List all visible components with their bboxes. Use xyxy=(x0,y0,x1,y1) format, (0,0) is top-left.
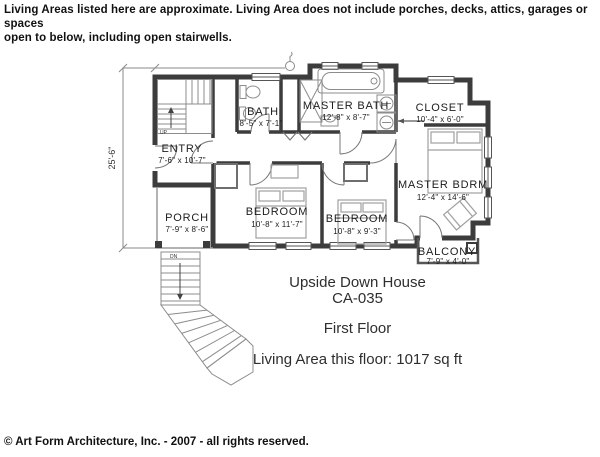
room-label-balcony: BALCONY 7'-9" x 4'-0" xyxy=(418,246,476,266)
svg-text:7'-9" x 4'-0": 7'-9" x 4'-0" xyxy=(427,257,470,266)
svg-text:PORCH: PORCH xyxy=(165,212,209,224)
room-label-bedroom-1: BEDROOM 10'-8" x 11'-7" xyxy=(246,206,308,229)
svg-text:10'-8" x 9'-3": 10'-8" x 9'-3" xyxy=(333,227,381,236)
room-label-closet: CLOSET 10'-4" x 6'-0" xyxy=(416,102,465,124)
room-label-porch: PORCH 7'-9" x 8'-6" xyxy=(165,212,209,234)
svg-text:12'-4" x 14'-6": 12'-4" x 14'-6" xyxy=(417,193,469,202)
svg-text:BEDROOM: BEDROOM xyxy=(246,206,308,218)
living-area-label: Living Area this floor: 1017 sq ft xyxy=(225,352,490,368)
svg-text:ENTRY: ENTRY xyxy=(161,143,202,155)
interior-stairs xyxy=(158,80,213,134)
svg-text:BATH: BATH xyxy=(247,106,279,118)
stairs-up-label: UP xyxy=(160,130,168,136)
room-label-bedroom-2: BEDROOM 10'-8" x 9'-3" xyxy=(326,213,388,236)
overall-depth-dimension: 25'-6" xyxy=(107,147,117,170)
floor-plan-svg: 25'-6" xyxy=(0,0,600,457)
stairs-down-label: DN xyxy=(170,254,178,260)
room-label-master-bdrm: MASTER BDRM 12'-4" x 14'-6" xyxy=(398,179,488,202)
house-name: Upside Down House xyxy=(225,275,490,291)
title-block: Upside Down House CA-035 First Floor Liv… xyxy=(225,275,490,368)
copyright-notice: © Art Form Architecture, Inc. - 2007 - a… xyxy=(4,436,309,448)
svg-text:CLOSET: CLOSET xyxy=(416,102,465,114)
room-label-master-bath: MASTER BATH 12'-8" x 8'-7" xyxy=(303,100,389,122)
svg-text:10'-4" x 6'-0": 10'-4" x 6'-0" xyxy=(416,115,464,124)
plan-id: CA-035 xyxy=(225,291,490,307)
svg-text:12'-8" x 8'-7": 12'-8" x 8'-7" xyxy=(322,113,370,122)
svg-text:10'-8" x 11'-7": 10'-8" x 11'-7" xyxy=(251,220,303,229)
svg-text:BEDROOM: BEDROOM xyxy=(326,213,388,225)
porch-posts xyxy=(155,241,210,248)
svg-text:8'-5" x 7'-1": 8'-5" x 7'-1" xyxy=(240,119,283,128)
floor-label: First Floor xyxy=(225,321,490,337)
svg-text:7'-9" x 8'-6": 7'-9" x 8'-6" xyxy=(166,225,209,234)
svg-text:7'-6" x 10'-7": 7'-6" x 10'-7" xyxy=(158,156,206,165)
room-label-entry: ENTRY 7'-6" x 10'-7" xyxy=(158,143,206,165)
svg-text:MASTER BATH: MASTER BATH xyxy=(303,100,389,112)
svg-text:MASTER BDRM: MASTER BDRM xyxy=(398,179,488,191)
floor-plan-page: Living Areas listed here are approximate… xyxy=(0,0,600,457)
